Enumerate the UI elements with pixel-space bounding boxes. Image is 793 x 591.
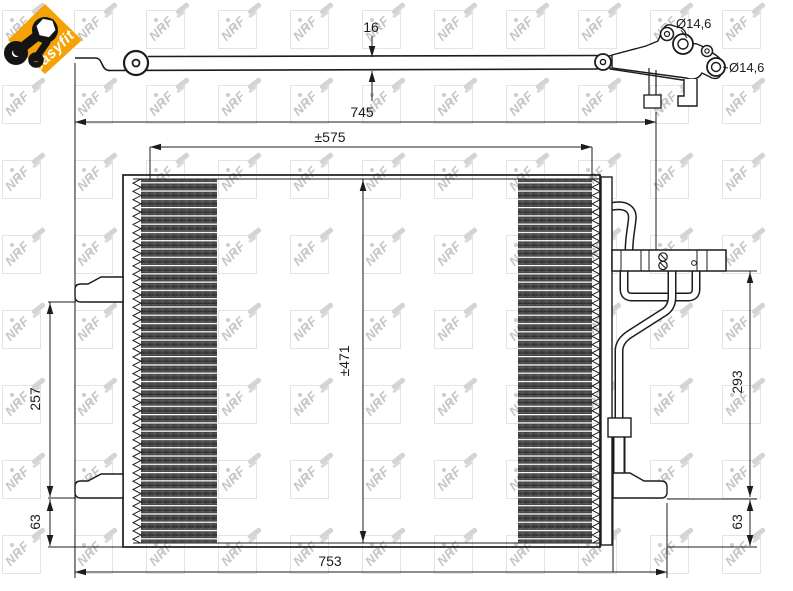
arrowhead (747, 535, 754, 546)
port-diameter-lower-label: Ø14,6 (729, 60, 764, 75)
arrowhead (369, 71, 376, 82)
port-upper (673, 34, 693, 54)
port-diameter-upper-label: Ø14,6 (676, 16, 711, 31)
arrowhead (360, 531, 367, 542)
arrowhead (47, 535, 54, 546)
arrowhead (747, 500, 754, 511)
arrowhead (47, 303, 54, 314)
dim-471-label: ±471 (336, 345, 352, 376)
dim-257-label: 257 (27, 387, 43, 411)
dim-745-label: 745 (350, 104, 374, 120)
arrowhead (747, 272, 754, 283)
condenser-core-right (518, 179, 592, 543)
arrowhead (47, 486, 54, 497)
mounting-bracket-upper-left (75, 277, 123, 302)
fin-edge-right (592, 179, 600, 543)
bar-eyelet (595, 54, 611, 70)
port-lower (707, 58, 725, 76)
receiver-tank (601, 177, 612, 545)
top-view: Ø14,6 Ø14,6 (75, 16, 764, 108)
arrowhead (75, 119, 86, 126)
drawing-svg: 16 745 ±575 ±471 257 63 293 63 753 (0, 0, 793, 591)
arrowhead (581, 144, 592, 151)
front-view (75, 175, 726, 572)
arrowhead (645, 119, 656, 126)
dim-16-label: 16 (363, 19, 379, 35)
pipe-fitting (608, 418, 631, 437)
mounting-bracket-lower-left (75, 474, 123, 498)
dim-575-label: ±575 (314, 129, 345, 145)
arrowhead (360, 180, 367, 191)
upper-bracket-assembly (595, 25, 728, 108)
bracket-leg (678, 79, 697, 106)
condenser-technical-drawing: NRFNRFNRFNRFNRFNRFNRFNRFNRFNRFNRFNRFNRFN… (0, 0, 793, 591)
arrowhead (656, 569, 667, 576)
spring-clip (75, 58, 110, 71)
easyfit-badge: easyfit (8, 4, 82, 75)
dim-753-label: 753 (318, 553, 342, 569)
bracket-foot (644, 95, 661, 108)
connection-block (612, 250, 726, 271)
arrowhead (150, 144, 161, 151)
mounting-bracket-lower-right (613, 473, 667, 498)
arrowhead (47, 500, 54, 511)
dim-293-label: 293 (729, 370, 745, 394)
arrowhead (747, 486, 754, 497)
arrowhead (75, 569, 86, 576)
dim-63-right-label: 63 (729, 514, 745, 530)
fin-edge-left (133, 179, 141, 543)
dim-63-left-label: 63 (27, 514, 43, 530)
condenser-core-left (141, 179, 217, 543)
